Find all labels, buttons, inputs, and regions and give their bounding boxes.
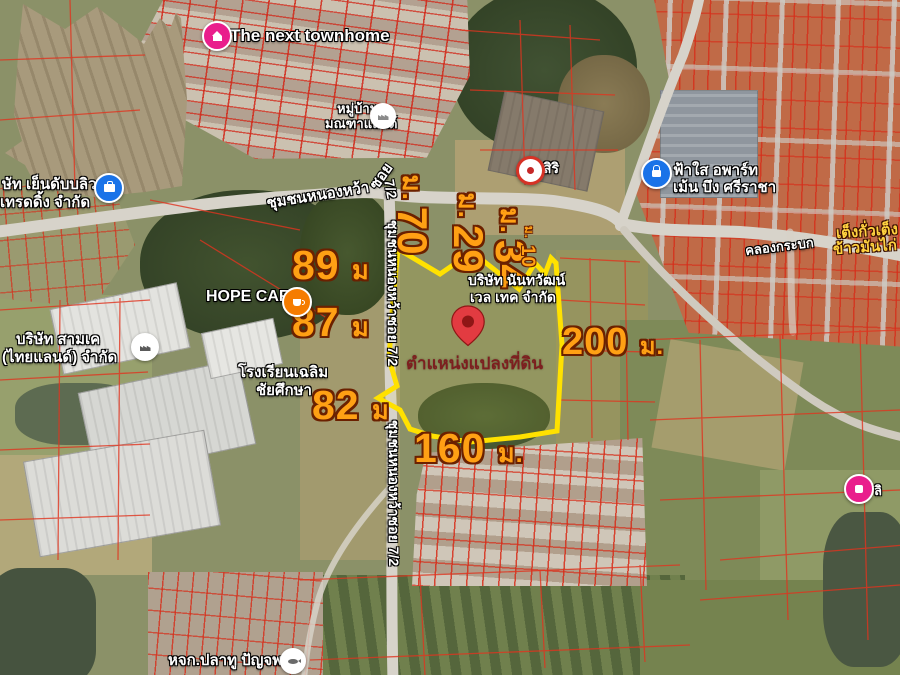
label-nantawan-line2: เวล เทค จำกัด [470, 287, 556, 309]
label-yenw-line2: เทรดดิ้ง จำกัด [0, 190, 90, 214]
road-label-vertical-1: ชุมชนหนองหว้าซอย 7/2 [381, 203, 403, 383]
dimension-label-200: 200 ม. [562, 323, 664, 361]
poi-plathu-icon[interactable] [280, 648, 306, 674]
satellite-map[interactable]: 89 ม 87 ม 82 ม 160 ม. 200 ม. ม.70 ม.29 ม… [0, 0, 900, 675]
shop-icon [855, 485, 863, 493]
poi-cafe-icon[interactable] [282, 287, 312, 317]
label-townhome: The next townhome [230, 26, 390, 46]
poi-apartment-icon[interactable] [641, 158, 672, 189]
label-school-line2: ชัยศึกษา [256, 378, 312, 402]
dimension-label-82: 82 ม [312, 385, 390, 426]
lock-icon [652, 170, 661, 177]
buildings-icon [378, 112, 389, 120]
poi-siri-icon[interactable] [516, 156, 545, 185]
label-li: ลิ [874, 480, 882, 501]
label-plathu: หจก.ปลาทู ปัญจพล [168, 648, 291, 672]
poi-townhome-icon[interactable] [202, 21, 232, 51]
dimension-label-10: ม.10 [517, 224, 539, 270]
label-fasai-line2: เม้น บึง ศรีราชา [673, 175, 776, 199]
road-label-vertical-2: ชุมชนหนองหว้าซอย 7/2 [382, 403, 404, 583]
poi-li-icon[interactable] [844, 474, 874, 504]
red-dot-icon [527, 167, 534, 174]
label-siri: สิริ [543, 158, 559, 180]
factory-icon [140, 343, 151, 351]
road-label-soi-no: 7/2 [381, 178, 400, 200]
house-icon [213, 36, 222, 41]
pin-caption: ตำแหน่งแปลงที่ดิน [406, 350, 543, 377]
poi-factory-icon[interactable] [131, 333, 159, 361]
poi-company-icon[interactable] [94, 173, 124, 203]
coffee-cup-icon [293, 299, 301, 306]
dimension-label-89: 89 ม [292, 245, 370, 286]
fish-icon [288, 659, 298, 664]
poi-village-icon[interactable] [370, 103, 396, 129]
briefcase-icon [104, 184, 115, 192]
dimension-label-160: 160 ม. [414, 428, 524, 469]
label-teng-line2: ข้าวมันไก่ [832, 233, 897, 261]
label-samk-line2: (ไทยแลนด์) จำกัด [2, 345, 117, 369]
